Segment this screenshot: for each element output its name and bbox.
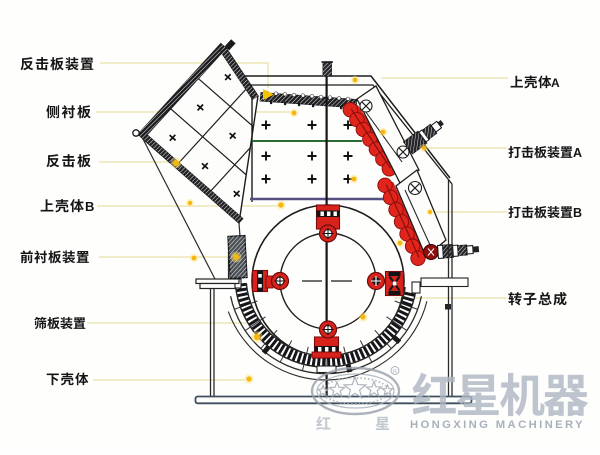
svg-text:B: B: [573, 206, 582, 220]
svg-text:A: A: [551, 76, 560, 90]
svg-text:A: A: [573, 146, 582, 160]
svg-text:HONGXING MACHINERY: HONGXING MACHINERY: [410, 419, 585, 431]
svg-text:R: R: [393, 369, 397, 375]
svg-text:B: B: [85, 199, 94, 214]
